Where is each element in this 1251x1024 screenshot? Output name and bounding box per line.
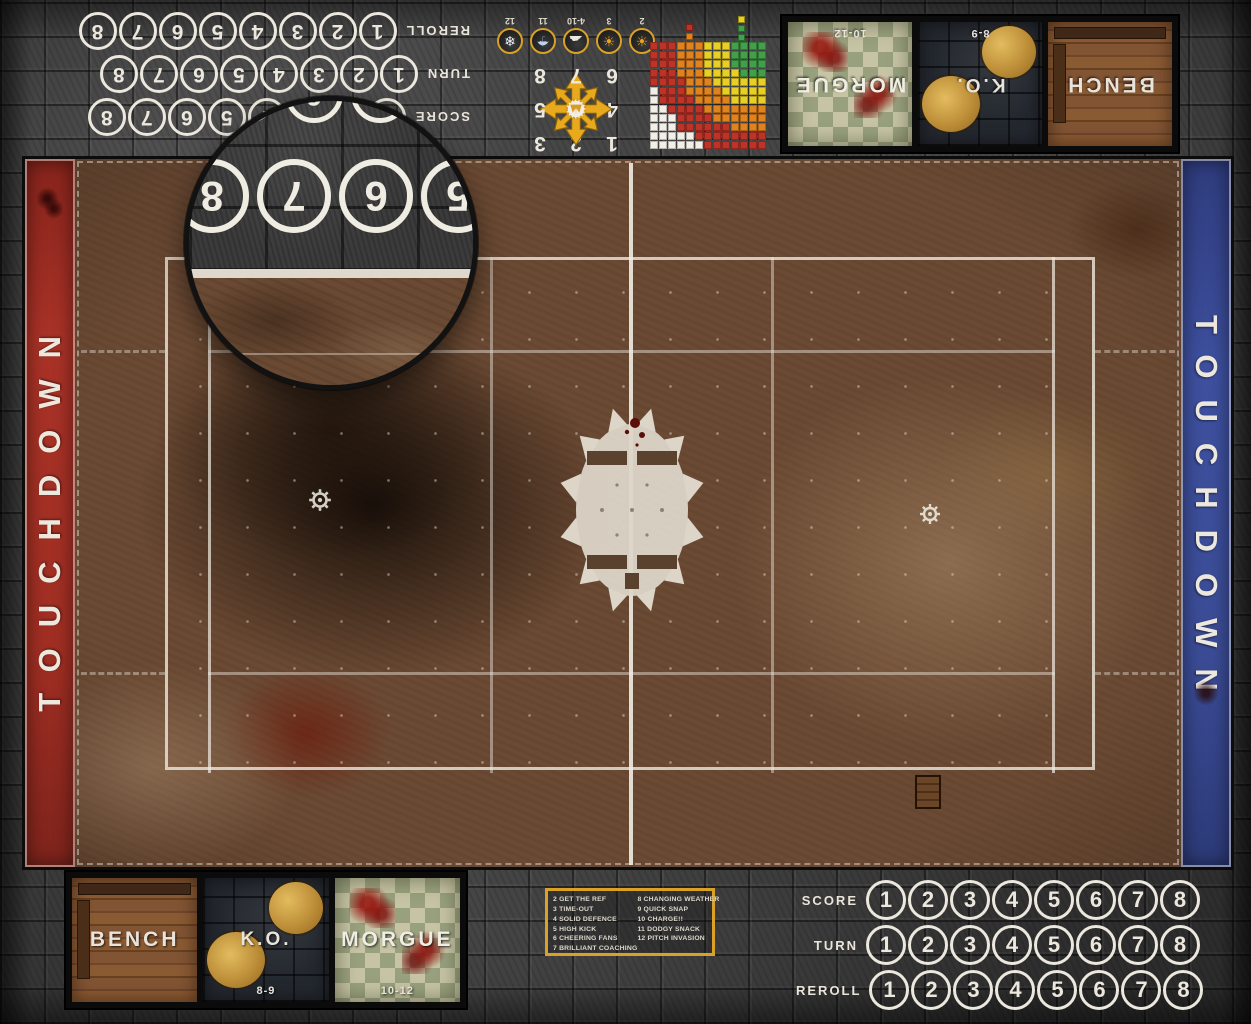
range-cell	[713, 60, 721, 68]
counter-circle-5: 5	[199, 12, 237, 50]
range-cell	[713, 141, 721, 149]
range-cell	[740, 42, 748, 50]
range-cell	[659, 78, 667, 86]
range-grid	[650, 42, 766, 149]
scatter-number-8: 8	[522, 58, 558, 92]
wide-zone-dash-right-bottom	[1095, 672, 1175, 675]
range-cell	[740, 114, 748, 122]
magnifier-partial-circle-row: 567	[219, 96, 409, 123]
kickoff-column-right: 8 CHANGING WEATHER9 QUICK SNAP10 CHARGE!…	[637, 895, 719, 949]
range-cell	[668, 141, 676, 149]
counter-row-label: TURN	[796, 938, 858, 953]
sunny-cloud-icon: ☀	[603, 33, 616, 50]
range-cell	[677, 51, 685, 59]
counter-row-turn: TURN12345678	[788, 925, 1200, 965]
range-cell	[677, 114, 685, 122]
range-cell	[650, 51, 658, 59]
counter-circle-6: 6	[180, 55, 218, 93]
scatter-number-5: 5	[522, 92, 558, 126]
range-cell	[659, 60, 667, 68]
counter-circle-3: 3	[300, 55, 338, 93]
range-cell	[677, 42, 685, 50]
range-cell	[650, 96, 658, 104]
counter-circle-6: 6	[159, 12, 197, 50]
range-cell	[668, 69, 676, 77]
kickoff-entry: 11 DODGY SNACK	[637, 925, 719, 935]
touchdown-banner-right: TOUCHDOWN	[1181, 159, 1231, 867]
dugout-range-label: 10-12	[788, 27, 912, 39]
range-cell	[740, 78, 748, 86]
counter-circle-5: 5	[1034, 880, 1074, 920]
range-cell	[749, 60, 757, 68]
rain-cloud-icon: ☂	[537, 33, 550, 50]
range-cell	[758, 141, 766, 149]
range-cell	[722, 69, 730, 77]
range-cell	[749, 96, 757, 104]
range-cell	[749, 132, 757, 140]
range-cell	[695, 114, 703, 122]
counter-circle-8: 8	[79, 12, 117, 50]
range-cell	[731, 123, 739, 131]
kickoff-entry: 5 HIGH KICK	[553, 925, 637, 935]
weather-item-11: ☂11	[530, 16, 556, 54]
range-cell	[650, 60, 658, 68]
range-cell	[677, 60, 685, 68]
counter-circle-6: 6	[1076, 925, 1116, 965]
magnifier-circle-6: 6	[339, 159, 413, 233]
dugout-label: BENCH	[90, 928, 180, 952]
counter-circle-2: 2	[908, 925, 948, 965]
snow-cloud-icon: ❄	[497, 28, 523, 54]
range-cell	[650, 114, 658, 122]
range-cell	[659, 123, 667, 131]
range-cell	[749, 51, 757, 59]
range-cell	[713, 105, 721, 113]
range-cell	[659, 42, 667, 50]
dugout-panel-bench: BENCH	[72, 878, 197, 1002]
counter-circle-1: 1	[866, 925, 906, 965]
kickoff-entry: 12 PITCH INVASION	[637, 934, 719, 944]
range-cell	[740, 60, 748, 68]
weather-chart: ☀2☀3☁4-10☂11❄12	[497, 16, 655, 54]
dugout-panel-ko: K.O.8-9	[918, 22, 1042, 146]
dugout-range-label: 10-12	[335, 985, 460, 997]
dugout-panel-ko: K.O.8-9	[203, 878, 328, 1002]
counter-circle-5: 5	[1037, 970, 1077, 1010]
range-cell	[749, 123, 757, 131]
range-cell	[713, 78, 721, 86]
dugout-panel-content: K.O.8-9	[918, 22, 1042, 146]
range-cell	[659, 51, 667, 59]
counter-circle-2: 2	[340, 55, 378, 93]
range-cell	[758, 69, 766, 77]
scatter-number-7: 7	[558, 58, 594, 92]
dugout-label: BENCH	[1065, 72, 1155, 96]
range-cell	[659, 69, 667, 77]
scatter-hub	[558, 92, 594, 126]
counter-circle-4: 4	[239, 12, 277, 50]
range-cell	[686, 132, 694, 140]
range-cell	[749, 105, 757, 113]
range-cell	[731, 105, 739, 113]
range-cell	[668, 42, 676, 50]
dugout-panel-content: MORGUE10-12	[788, 22, 912, 146]
range-cell	[713, 42, 721, 50]
scatter-template: 12345678	[522, 58, 630, 160]
range-cell	[704, 51, 712, 59]
magnifier-main-circle-row: 5678	[184, 159, 478, 233]
range-cell	[704, 141, 712, 149]
range-cell	[731, 141, 739, 149]
magnifier-circle-7: 7	[257, 159, 331, 233]
counter-circles: 12345678	[866, 880, 1200, 920]
range-ruler-chart	[650, 16, 768, 150]
dugout-top: MORGUE10-12K.O.8-9BENCH	[780, 14, 1180, 154]
magnifier-circle-6: 6	[285, 96, 343, 123]
range-cell	[740, 87, 748, 95]
counter-circle-3: 3	[953, 970, 993, 1010]
range-cell	[695, 69, 703, 77]
range-cell	[650, 87, 658, 95]
dugout-label: K.O.	[954, 73, 1005, 95]
range-cell	[650, 105, 658, 113]
range-cell	[686, 105, 694, 113]
counter-circle-4: 4	[995, 970, 1035, 1010]
range-cell	[704, 42, 712, 50]
range-cell	[668, 105, 676, 113]
weather-item-4-10: ☁4-10	[563, 16, 589, 54]
range-cell	[758, 78, 766, 86]
partly-cloudy-icon: ☁	[569, 33, 583, 50]
range-cell	[695, 60, 703, 68]
range-cell	[731, 78, 739, 86]
range-cell	[650, 42, 658, 50]
range-cell	[731, 114, 739, 122]
range-cell	[749, 114, 757, 122]
range-cell	[686, 60, 694, 68]
counter-circle-7: 7	[128, 98, 166, 136]
range-cell	[677, 123, 685, 131]
range-cell	[731, 51, 739, 59]
range-cell	[686, 114, 694, 122]
counter-circle-6: 6	[1076, 880, 1116, 920]
wide-zone-dash-right-top	[1095, 350, 1175, 353]
range-cell	[650, 69, 658, 77]
counter-circle-4: 4	[260, 55, 298, 93]
range-cell	[758, 105, 766, 113]
range-cell	[668, 87, 676, 95]
weather-value-label: 3	[607, 16, 612, 26]
sunny-cloud-icon: ☀	[596, 28, 622, 54]
range-cell	[686, 123, 694, 131]
range-cell	[668, 123, 676, 131]
range-cell	[695, 141, 703, 149]
range-cell	[740, 51, 748, 59]
range-cell	[704, 69, 712, 77]
range-cell	[686, 42, 694, 50]
range-cell	[704, 123, 712, 131]
kickoff-table: 2 GET THE REF3 TIME-OUT4 SOLID DEFENCE5 …	[545, 888, 715, 956]
counter-circles: 12345678	[100, 55, 418, 93]
range-cell	[731, 132, 739, 140]
dugout-label: MORGUE	[341, 928, 454, 952]
kickoff-entry: 6 CHEERING FANS	[553, 934, 637, 944]
kickoff-entry: 10 CHARGE!!	[637, 915, 719, 925]
counter-row-label: SCORE	[796, 893, 858, 908]
range-cell	[758, 51, 766, 59]
range-cell	[650, 123, 658, 131]
scatter-number-6: 6	[594, 58, 630, 92]
counter-row-reroll: REROLL12345678	[58, 12, 478, 50]
counter-circle-2: 2	[319, 12, 357, 50]
range-cell	[740, 96, 748, 104]
counter-circle-1: 1	[380, 55, 418, 93]
magnifier-circle-5: 5	[421, 159, 478, 233]
counter-circle-8: 8	[1160, 880, 1200, 920]
range-cell	[695, 51, 703, 59]
counter-circle-8: 8	[88, 98, 126, 136]
range-cell	[668, 132, 676, 140]
sun-icon: ☀	[636, 33, 649, 50]
team-gear-icon-right	[918, 502, 942, 526]
counter-circle-1: 1	[869, 970, 909, 1010]
dugout-panel-morgue: MORGUE10-12	[335, 878, 460, 1002]
dugout-panel-content: BENCH	[1048, 22, 1172, 146]
range-cell	[650, 132, 658, 140]
range-cell	[677, 141, 685, 149]
range-cell	[731, 96, 739, 104]
touchdown-text-left: TOUCHDOWN	[32, 315, 68, 712]
dugout-panel-morgue: MORGUE10-12	[788, 22, 912, 146]
kickoff-column-left: 2 GET THE REF3 TIME-OUT4 SOLID DEFENCE5 …	[553, 895, 637, 949]
range-cell	[659, 96, 667, 104]
touchdown-text-right: TOUCHDOWN	[1188, 315, 1224, 712]
dugout-label: K.O.	[240, 929, 291, 951]
range-cell	[677, 132, 685, 140]
range-cell	[749, 78, 757, 86]
range-cell	[695, 96, 703, 104]
dugout-range-label: 8-9	[918, 27, 1042, 39]
kickoff-entry: 4 SOLID DEFENCE	[553, 915, 637, 925]
range-cell	[695, 87, 703, 95]
range-cell	[731, 69, 739, 77]
counter-circle-3: 3	[279, 12, 317, 50]
range-cell	[677, 105, 685, 113]
weather-value-label: 12	[505, 16, 515, 26]
range-cell	[659, 105, 667, 113]
range-cell	[722, 78, 730, 86]
dugout-panel-content: BENCH	[72, 878, 197, 1002]
range-cell	[758, 123, 766, 131]
counter-circle-1: 1	[866, 880, 906, 920]
range-legend-swatch	[738, 16, 745, 23]
counter-circles: 12345678	[869, 970, 1203, 1010]
range-cell	[722, 60, 730, 68]
range-cell	[722, 87, 730, 95]
range-cell	[704, 60, 712, 68]
counter-circle-7: 7	[1121, 970, 1161, 1010]
counter-circle-7: 7	[1118, 880, 1158, 920]
counter-row-turn: TURN12345678	[58, 55, 478, 93]
range-cell	[722, 51, 730, 59]
magnifier-circle-7: 7	[219, 96, 277, 123]
range-cell	[713, 114, 721, 122]
dugout-range-label: 8-9	[203, 985, 328, 997]
range-cell	[695, 78, 703, 86]
kickoff-entry: 7 BRILLIANT COACHING	[553, 944, 637, 954]
counter-row-score: SCORE12345678	[788, 880, 1200, 920]
range-cell	[677, 78, 685, 86]
range-cell	[668, 51, 676, 59]
counter-circle-5: 5	[220, 55, 258, 93]
range-cell	[758, 114, 766, 122]
range-cell	[749, 42, 757, 50]
counters-bottom-right: SCORE12345678TURN12345678REROLL12345678	[788, 880, 1200, 1015]
range-cell	[758, 87, 766, 95]
counter-circle-4: 4	[992, 925, 1032, 965]
snow-cloud-icon: ❄	[504, 33, 516, 50]
kickoff-entry: 9 QUICK SNAP	[637, 905, 719, 915]
rain-cloud-icon: ☂	[530, 28, 556, 54]
dugout-panel-content: MORGUE10-12	[335, 878, 460, 1002]
range-legend-swatch	[686, 33, 693, 40]
range-cell	[749, 141, 757, 149]
range-cell	[722, 96, 730, 104]
range-cell	[659, 114, 667, 122]
counter-circle-6: 6	[1079, 970, 1119, 1010]
range-cell	[686, 141, 694, 149]
touchdown-banner-left: TOUCHDOWN	[25, 159, 75, 867]
range-cell	[722, 42, 730, 50]
counter-row-label: REROLL	[796, 983, 861, 998]
dugout-panel-content: K.O.8-9	[203, 878, 328, 1002]
range-cell	[731, 42, 739, 50]
range-cell	[659, 87, 667, 95]
wide-zone-dash-left-bottom	[81, 672, 165, 675]
wide-zone-dash-left-top	[81, 350, 165, 353]
range-cell	[722, 123, 730, 131]
magnifier-circle-8: 8	[184, 159, 249, 233]
range-cell	[686, 78, 694, 86]
range-cell	[713, 51, 721, 59]
range-cell	[686, 96, 694, 104]
range-cell	[749, 87, 757, 95]
counter-circle-2: 2	[911, 970, 951, 1010]
center-ball-emblem	[557, 405, 707, 615]
weather-item-12: ❄12	[497, 16, 523, 54]
range-cell	[704, 78, 712, 86]
kickoff-entry: 2 GET THE REF	[553, 895, 637, 905]
range-cell	[740, 141, 748, 149]
counter-row-label: REROLL	[405, 24, 470, 39]
range-legend-swatch	[738, 25, 745, 32]
counter-circle-5: 5	[1034, 925, 1074, 965]
kickoff-entry: 3 TIME-OUT	[553, 905, 637, 915]
dugout-label: MORGUE	[794, 72, 907, 96]
range-cell	[695, 132, 703, 140]
range-cell	[758, 42, 766, 50]
range-cell	[704, 105, 712, 113]
range-cell	[731, 87, 739, 95]
range-cell	[695, 105, 703, 113]
dugout-bottom: BENCHK.O.8-9MORGUE10-12	[64, 870, 468, 1010]
magnifier-circle-5: 5	[351, 96, 409, 123]
weather-item-3: ☀3	[596, 16, 622, 54]
counter-circle-4: 4	[992, 880, 1032, 920]
counter-row-reroll: REROLL12345678	[788, 970, 1200, 1010]
weather-value-label: 2	[640, 16, 645, 26]
range-legend-right	[738, 16, 745, 41]
magnifier-inset: 567 5678	[184, 96, 478, 390]
counter-circle-7: 7	[1118, 925, 1158, 965]
range-cell	[740, 105, 748, 113]
range-cell	[659, 132, 667, 140]
range-cell	[686, 87, 694, 95]
range-cell	[668, 114, 676, 122]
range-cell	[758, 96, 766, 104]
range-cell	[740, 132, 748, 140]
weather-value-label: 11	[538, 16, 548, 26]
dugout-panel-bench: BENCH	[1048, 22, 1172, 146]
kickoff-entry: 8 CHANGING WEATHER	[637, 895, 719, 905]
range-cell	[758, 60, 766, 68]
range-cell	[668, 60, 676, 68]
magnifier-pitch-edge-line	[189, 269, 473, 278]
range-cell	[704, 132, 712, 140]
range-cell	[722, 132, 730, 140]
team-gear-icon-left	[307, 487, 333, 513]
range-cell	[677, 69, 685, 77]
range-cell	[713, 96, 721, 104]
counter-circles: 12345678	[79, 12, 397, 50]
range-cell	[713, 132, 721, 140]
counter-circle-8: 8	[1163, 970, 1203, 1010]
range-cell	[650, 78, 658, 86]
range-legend-swatch	[686, 24, 693, 31]
range-cell	[695, 42, 703, 50]
counter-circles: 12345678	[866, 925, 1200, 965]
range-cell	[695, 123, 703, 131]
counter-row-label: TURN	[426, 67, 470, 82]
partly-cloudy-icon: ☁	[563, 28, 589, 54]
counter-circle-8: 8	[1160, 925, 1200, 965]
range-cell	[659, 141, 667, 149]
range-cell	[731, 60, 739, 68]
range-cell	[740, 69, 748, 77]
counter-circle-7: 7	[140, 55, 178, 93]
range-legend-left	[686, 24, 693, 40]
counter-circle-3: 3	[950, 880, 990, 920]
counter-circle-8: 8	[100, 55, 138, 93]
range-cell	[704, 96, 712, 104]
wooden-crate	[915, 775, 941, 809]
range-cell	[677, 96, 685, 104]
weather-value-label: 4-10	[567, 16, 585, 26]
range-cell	[686, 69, 694, 77]
range-cell	[740, 123, 748, 131]
range-cell	[713, 87, 721, 95]
range-cell	[713, 69, 721, 77]
counter-circle-1: 1	[359, 12, 397, 50]
range-cell	[758, 132, 766, 140]
range-cell	[668, 96, 676, 104]
weather-and-scatter-block: 12345678 ☀2☀3☁4-10☂11❄12	[492, 10, 660, 160]
range-cell	[650, 141, 658, 149]
range-cell	[722, 114, 730, 122]
range-cell	[668, 78, 676, 86]
magnifier-field-line	[189, 353, 473, 355]
range-cell	[713, 123, 721, 131]
